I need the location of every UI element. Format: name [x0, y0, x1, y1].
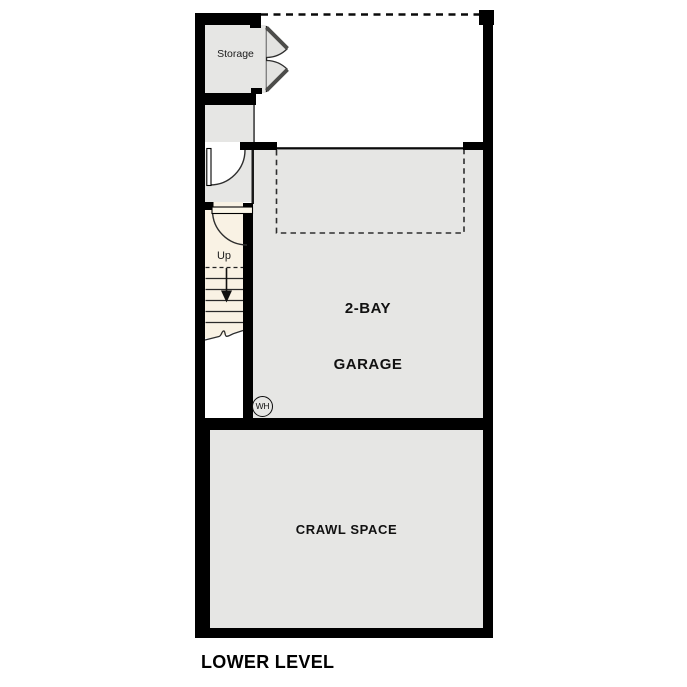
- right-wall-lower: [483, 418, 493, 638]
- storage-double-doors: [266, 26, 288, 92]
- left-wall-upper: [195, 13, 205, 418]
- stair-door-leaf: [212, 207, 253, 214]
- bottom-wall: [195, 628, 493, 638]
- storage-room-label: Storage: [205, 48, 266, 60]
- storage-door-stub-top: [250, 25, 261, 28]
- crawl-space-label: CRAWL SPACE: [210, 522, 483, 537]
- entry-door-leaf: [207, 149, 211, 186]
- garage-room-label: 2-BAY GARAGE: [253, 263, 483, 411]
- right-wall-upper: [483, 25, 493, 418]
- garage-door-left-block: [240, 142, 277, 150]
- stair-void-below-break: [205, 330, 243, 418]
- garage-door-header-line: [277, 147, 463, 149]
- stair-floor: [205, 202, 243, 338]
- upper-vestibule-floor: [205, 105, 255, 142]
- garage-label-line1: 2-BAY: [253, 300, 483, 319]
- stairs-up-label: Up: [205, 250, 243, 262]
- top-right-pilaster: [479, 10, 494, 25]
- garage-left-wall: [243, 203, 253, 418]
- vestibule-right-line: [253, 105, 255, 142]
- entry-garage-divider-line: [252, 150, 255, 204]
- garage-label-line2: GARAGE: [253, 356, 483, 375]
- floor-plan-page: Storage Up 2-BAY GARAGE WH CRAWL SPACE L…: [0, 0, 687, 687]
- left-wall-lower: [195, 418, 210, 638]
- water-heater-symbol: WH: [252, 396, 273, 417]
- floor-plan-title: LOWER LEVEL: [201, 652, 401, 673]
- crawl-top-wall: [195, 418, 493, 430]
- storage-bottom-wall: [195, 93, 256, 105]
